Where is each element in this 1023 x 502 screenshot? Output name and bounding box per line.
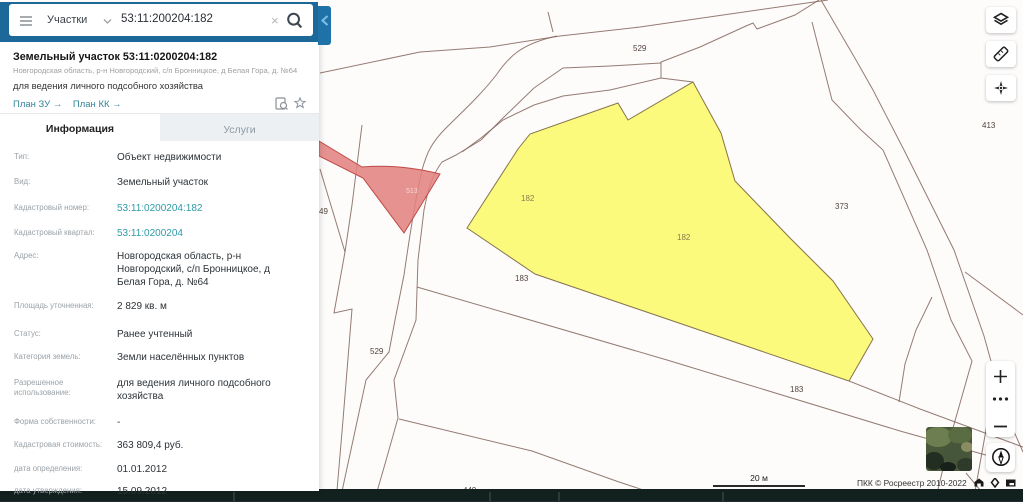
svg-text:182: 182 (677, 233, 691, 242)
svg-text:513: 513 (406, 188, 418, 195)
svg-text:182: 182 (521, 194, 535, 203)
svg-text:529: 529 (370, 347, 384, 356)
svg-text:413: 413 (982, 121, 996, 130)
svg-text:49: 49 (319, 207, 328, 216)
svg-text:373: 373 (835, 202, 849, 211)
svg-text:183: 183 (790, 385, 804, 394)
svg-text:529: 529 (633, 44, 647, 53)
svg-text:183: 183 (515, 274, 529, 283)
